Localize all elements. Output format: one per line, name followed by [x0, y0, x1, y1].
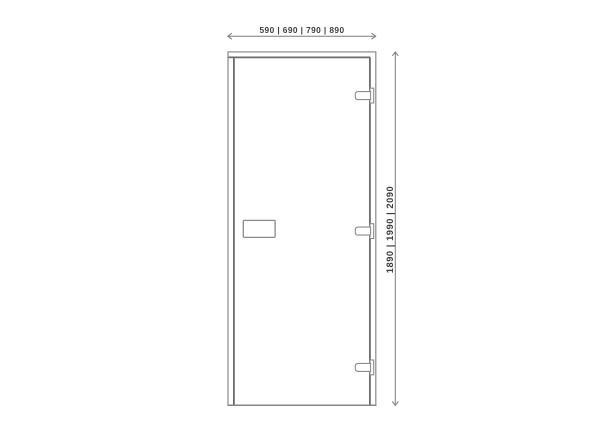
svg-text:1890 | 1990 | 2090: 1890 | 1990 | 2090: [385, 186, 395, 273]
svg-text:590 | 690 | 790 | 890: 590 | 690 | 790 | 890: [260, 25, 345, 35]
